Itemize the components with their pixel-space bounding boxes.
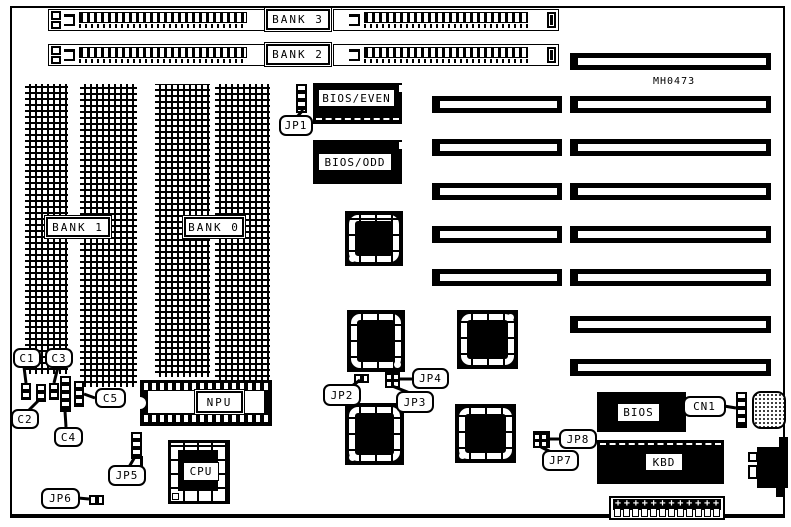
jp5-jumper <box>131 432 142 459</box>
bios-odd-label-text: BIOS/ODD <box>325 156 386 169</box>
power-hole <box>650 508 657 517</box>
expansion-slot-long <box>570 139 771 156</box>
expansion-slot-long <box>570 269 771 286</box>
power-hole <box>686 508 693 517</box>
qfp-chip <box>345 403 404 465</box>
power-tab <box>748 465 758 479</box>
bank0-label: BANK 0 <box>184 217 244 237</box>
qfp-chip <box>345 211 403 266</box>
bank2-label: BANK 2 <box>266 44 330 65</box>
expansion-slot-short <box>432 183 562 200</box>
keyboard-din-connector <box>752 391 786 429</box>
simm-socket <box>48 44 278 66</box>
cpu-notch <box>172 493 179 500</box>
simm-socket <box>333 44 559 66</box>
cpu-label-text: CPU <box>190 465 213 478</box>
simm-contacts <box>79 47 247 58</box>
c2-capacitor <box>36 384 46 402</box>
simm-contacts <box>79 12 247 23</box>
expansion-slot-long <box>570 359 771 376</box>
power-hole <box>713 508 720 517</box>
simm-contacts <box>364 12 528 23</box>
cn1-callout: CN1 <box>683 396 726 417</box>
simm-latch <box>349 49 360 61</box>
kbd-label-text: KBD <box>653 456 676 469</box>
cpu-label: CPU <box>183 462 219 481</box>
power-hole <box>641 508 648 517</box>
c5-callout: C5 <box>95 388 126 408</box>
power-connector-holes <box>614 508 720 517</box>
jp1-jumper <box>296 84 307 113</box>
simm-contacts <box>79 24 247 28</box>
board-edge-step <box>779 437 788 448</box>
c4-text: C4 <box>61 431 76 444</box>
jp3-jp4-jumper-block <box>385 371 400 388</box>
jp3-text: JP3 <box>404 396 427 409</box>
expansion-slot-long <box>570 53 771 70</box>
jp4-text: JP4 <box>419 372 442 385</box>
jp7-jp8-jumper-block <box>533 431 550 448</box>
jp6-text: JP6 <box>49 492 72 505</box>
board-edge-step <box>776 487 784 497</box>
simm-socket <box>48 9 278 31</box>
bios-even-label-text: BIOS/EVEN <box>322 92 391 105</box>
jp6-callout: JP6 <box>41 488 80 509</box>
qfp-chip <box>347 310 405 372</box>
jp4-callout: JP4 <box>412 368 449 389</box>
qfp-chip <box>457 310 518 369</box>
c2-callout: C2 <box>11 409 39 429</box>
c5-text: C5 <box>103 392 118 405</box>
power-hole <box>668 508 675 517</box>
expansion-slot-short <box>432 269 562 286</box>
simm-latch <box>349 14 360 26</box>
cn1-text: CN1 <box>693 400 716 413</box>
c3-callout: C3 <box>45 348 73 368</box>
simm-latch <box>547 12 556 28</box>
power-hole <box>659 508 666 517</box>
motherboard-diagram: BANK 3 BANK 2 BANK 1 BANK 0 BIOS/EVEN BI… <box>0 0 791 527</box>
pin1-dot <box>349 454 356 461</box>
simm-contacts <box>79 59 247 63</box>
c1-text: C1 <box>19 352 34 365</box>
bank3-label: BANK 3 <box>266 9 330 30</box>
simm-latch <box>51 21 61 29</box>
expansion-slot-long <box>570 316 771 333</box>
simm-latch <box>547 47 556 63</box>
jp8-text: JP8 <box>567 433 590 446</box>
bios-label: BIOS <box>616 402 661 423</box>
bios-even-label: BIOS/EVEN <box>317 88 396 108</box>
bios-odd-label: BIOS/ODD <box>317 152 393 172</box>
jp1-text: JP1 <box>285 119 308 132</box>
jp5-text: JP5 <box>116 469 139 482</box>
power-hole <box>704 508 711 517</box>
power-hole <box>614 508 621 517</box>
power-hole <box>677 508 684 517</box>
power-hole <box>695 508 702 517</box>
power-edge-block <box>757 447 788 488</box>
kbd-label: KBD <box>644 452 684 472</box>
jp7-callout: JP7 <box>542 450 579 471</box>
jp8-callout: JP8 <box>559 429 597 449</box>
c4-capacitor <box>60 376 71 412</box>
simm-latch <box>51 46 61 55</box>
simm-latch <box>64 49 75 61</box>
expansion-slot-short <box>432 226 562 243</box>
npu-pins <box>144 383 268 390</box>
c4-callout: C4 <box>54 427 83 447</box>
npu-pins <box>144 415 268 422</box>
bios-label-text: BIOS <box>623 406 654 419</box>
jp2-callout: JP2 <box>323 384 361 406</box>
c1-callout: C1 <box>13 348 41 368</box>
simm-socket <box>333 9 559 31</box>
jp1-callout: JP1 <box>279 115 313 136</box>
part-number: MH0473 <box>653 76 695 87</box>
jp3-callout: JP3 <box>396 391 434 413</box>
c3-text: C3 <box>51 352 66 365</box>
simm-latch <box>51 56 61 64</box>
npu-label-text: NPU <box>207 396 233 409</box>
jp7-text: JP7 <box>549 454 572 467</box>
bank0-label-text: BANK 0 <box>188 221 240 234</box>
power-hole <box>623 508 630 517</box>
bank3-label-text: BANK 3 <box>272 13 324 26</box>
jp2-jumper <box>354 374 369 383</box>
jp5-callout: JP5 <box>108 465 146 486</box>
pin1-dot <box>459 452 466 459</box>
expansion-slot-long <box>570 226 771 243</box>
npu-notch <box>138 397 146 409</box>
simm-contacts <box>364 59 528 63</box>
jp6-jumper <box>89 495 104 505</box>
expansion-slot-short <box>432 139 562 156</box>
expansion-slot-long <box>570 183 771 200</box>
pin1-dot <box>507 314 514 321</box>
simm-contacts <box>364 47 528 58</box>
simm-latch <box>64 14 75 26</box>
bank1-label-text: BANK 1 <box>52 221 104 234</box>
expansion-slot-long <box>570 96 771 113</box>
pin1-dot <box>349 255 356 262</box>
simm-latch <box>51 11 61 20</box>
c5-capacitor <box>74 381 84 407</box>
c2-text: C2 <box>17 413 32 426</box>
jp2-text: JP2 <box>331 389 354 402</box>
simm-contacts <box>364 24 528 28</box>
power-hole <box>632 508 639 517</box>
power-tab <box>748 452 758 462</box>
bank2-label-text: BANK 2 <box>272 48 324 61</box>
npu-label: NPU <box>196 391 243 413</box>
qfp-chip <box>455 404 516 463</box>
c3-capacitor <box>49 383 59 400</box>
cn1-header <box>736 392 747 428</box>
c1-capacitor <box>21 383 31 400</box>
expansion-slot-short <box>432 96 562 113</box>
pin1-dot <box>394 361 401 368</box>
bank1-label: BANK 1 <box>46 217 110 237</box>
power-connector: ++++++++++++ <box>609 496 725 520</box>
